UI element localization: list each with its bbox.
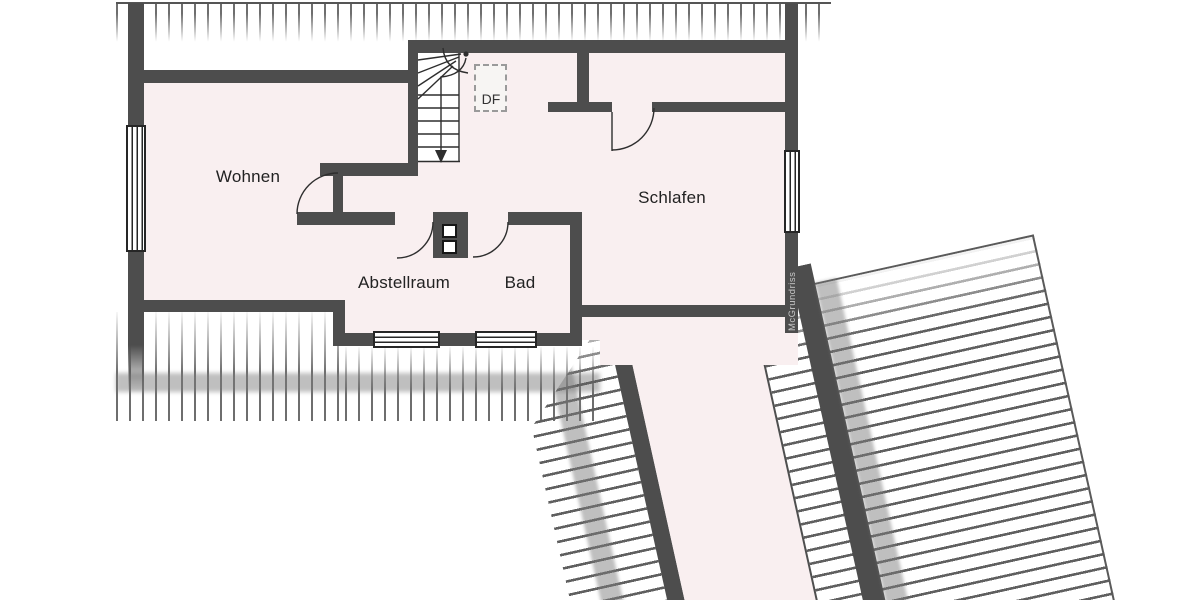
- floor-plan-canvas: Wohnen Schlafen Abstellraum Bad DF McGru…: [0, 0, 1200, 600]
- room-label-abstellraum: Abstellraum: [358, 273, 450, 293]
- room-label-schlafen: Schlafen: [638, 188, 706, 208]
- stair-and-door-symbols: [0, 0, 1200, 600]
- room-label-bad: Bad: [505, 273, 536, 293]
- roof-window-label: DF: [482, 91, 501, 107]
- watermark-text: McGrundriss: [786, 258, 799, 344]
- room-label-wohnen: Wohnen: [216, 167, 280, 187]
